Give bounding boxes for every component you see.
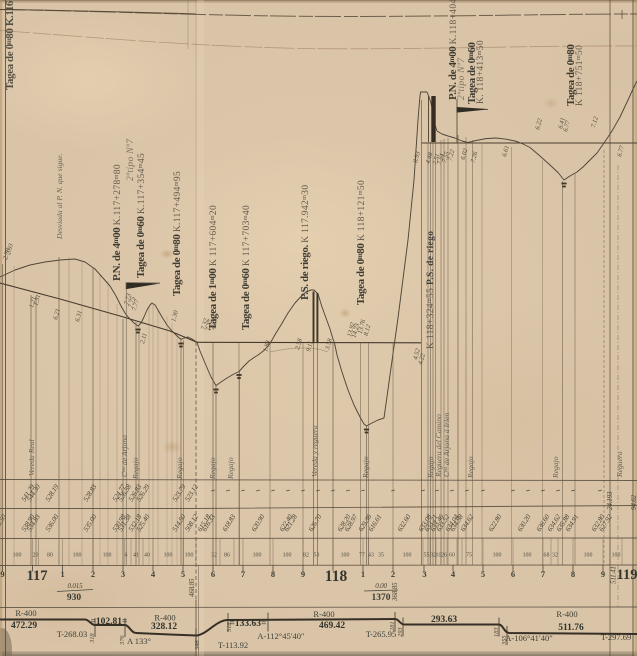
svg-text:100: 100 [584, 553, 593, 559]
svg-text:32: 32 [211, 553, 217, 559]
svg-text:T-297.69: T-297.69 [601, 632, 632, 642]
svg-text:100: 100 [283, 553, 292, 559]
svg-text:Regajo: Regajo [175, 457, 184, 480]
svg-text:2ºtipo Nº7: 2ºtipo Nº7 [126, 138, 136, 181]
svg-text:=102.81=: =102.81= [91, 617, 128, 627]
svg-text:Tagea de 0m80 K 118+121m50: Tagea de 0m80 K 118+121m50 [355, 180, 367, 305]
svg-text:K 118+324m55 P.S. de riego: K 118+324m55 P.S. de riego [426, 231, 436, 349]
svg-text:9: 9 [601, 569, 605, 579]
svg-text:100: 100 [493, 553, 502, 559]
svg-text:41: 41 [133, 553, 139, 559]
svg-text:80: 80 [47, 553, 53, 559]
svg-text:20: 20 [33, 553, 39, 559]
svg-text:24.193: 24.193 [606, 491, 614, 510]
svg-text:Regajo: Regajo [551, 456, 560, 479]
svg-text:100: 100 [403, 553, 412, 559]
svg-text:Reguera: Reguera [615, 451, 624, 478]
svg-text:Cno de Arjona á Irlen: Cno de Arjona á Irlen [442, 413, 451, 477]
svg-text:117: 117 [27, 568, 48, 584]
svg-text:R-400: R-400 [15, 608, 36, 618]
svg-text:R-400: R-400 [154, 613, 175, 623]
svg-text:R-400: R-400 [313, 609, 334, 619]
svg-text:5: 5 [481, 569, 485, 579]
svg-text:118: 118 [325, 568, 348, 585]
svg-text:77: 77 [359, 553, 365, 559]
svg-text:1: 1 [361, 569, 365, 579]
svg-text:9: 9 [301, 569, 305, 579]
svg-text:T-268.03: T-268.03 [57, 629, 88, 639]
svg-text:53: 53 [314, 553, 320, 559]
svg-text:293.63: 293.63 [431, 615, 457, 625]
svg-text:T-113.92: T-113.92 [218, 640, 248, 650]
svg-text:Tagea de 1m00 K 117+604m20: Tagea de 1m00 K 117+604m20 [207, 205, 219, 330]
svg-text:A-106°41′40″: A-106°41′40″ [505, 633, 553, 643]
svg-text:100: 100 [185, 553, 194, 559]
svg-text:R-400: R-400 [556, 609, 577, 619]
svg-text:Regajo: Regajo [226, 457, 235, 480]
svg-text:94.62: 94.62 [630, 494, 637, 510]
svg-text:3: 3 [422, 569, 426, 579]
svg-text:100: 100 [164, 553, 173, 559]
svg-text:Regajo: Regajo [208, 457, 217, 480]
svg-text:0.00: 0.00 [375, 582, 387, 590]
svg-text:K. 118+413m50: K. 118+413m50 [476, 40, 486, 104]
svg-text:86: 86 [224, 553, 230, 559]
svg-text:Tagea de 0m60 K 117+703m40: Tagea de 0m60 K 117+703m40 [240, 205, 252, 330]
svg-text:100: 100 [13, 553, 22, 559]
svg-text:Tagea de 0m80 K.116+854m45: Tagea de 0m80 K.116+854m45 [4, 0, 16, 90]
svg-text:Vereda y reguera: Vereda y reguera [310, 425, 319, 477]
svg-text:100: 100 [103, 553, 112, 559]
svg-text:68: 68 [544, 553, 550, 559]
svg-text:119: 119 [617, 567, 637, 583]
svg-text:Regajo: Regajo [466, 456, 475, 479]
svg-text:1370: 1370 [372, 593, 391, 603]
svg-text:1: 1 [60, 569, 64, 579]
svg-text:Tagea de 0m80 K.117+494m95: Tagea de 0m80 K.117+494m95 [171, 171, 183, 296]
svg-text:930: 930 [67, 593, 82, 603]
svg-text:T-265.95: T-265.95 [366, 629, 397, 639]
svg-text:40: 40 [144, 553, 150, 559]
svg-text:26: 26 [441, 553, 447, 559]
svg-text:A-112°45′40″: A-112°45′40″ [257, 631, 305, 641]
svg-text:100: 100 [73, 553, 82, 559]
svg-text:=133.63=: =133.63= [230, 619, 267, 629]
svg-text:8: 8 [271, 569, 275, 579]
svg-text:469.42: 469.42 [319, 621, 345, 631]
svg-text:6: 6 [125, 553, 128, 559]
svg-text:100: 100 [341, 553, 350, 559]
svg-text:Tagea de 0m60 K.117+354m45: Tagea de 0m60 K.117+354m45 [135, 153, 147, 278]
svg-text:K 118+751m50: K 118+751m50 [575, 45, 585, 106]
svg-text:60: 60 [449, 553, 455, 559]
svg-text:511.41: 511.41 [610, 566, 618, 584]
svg-text:318: 318 [89, 633, 96, 644]
svg-text:0.015: 0.015 [68, 582, 84, 590]
svg-text:75: 75 [466, 553, 472, 559]
svg-text:3: 3 [121, 569, 125, 579]
svg-text:32: 32 [552, 553, 558, 559]
svg-text:376: 376 [119, 635, 126, 646]
svg-text:8: 8 [571, 569, 575, 579]
svg-text:183: 183 [493, 627, 500, 637]
svg-text:Vereda Real: Vereda Real [27, 439, 36, 476]
svg-text:2: 2 [391, 569, 395, 579]
svg-text:6: 6 [511, 569, 515, 579]
svg-text:511.76: 511.76 [558, 623, 584, 633]
svg-text:P.N. de 4m00 K.117+278m80: P.N. de 4m00 K.117+278m80 [111, 164, 123, 281]
svg-text:43: 43 [368, 553, 374, 559]
svg-text:346: 346 [194, 640, 201, 651]
svg-text:Desviada al P. N. que sigue.: Desviada al P. N. que sigue. [55, 153, 64, 240]
svg-text:9: 9 [0, 569, 4, 579]
svg-text:368.85: 368.85 [391, 582, 399, 602]
svg-text:A 133°: A 133° [127, 636, 151, 646]
svg-text:2: 2 [91, 569, 95, 579]
svg-text:472.29: 472.29 [11, 621, 37, 631]
svg-text:Regajo: Regajo [361, 456, 370, 479]
svg-text:468.85: 468.85 [188, 578, 196, 597]
svg-text:328.12: 328.12 [151, 622, 177, 632]
svg-text:5: 5 [181, 569, 185, 579]
svg-text:P.S. de riego. K 117.942m30: P.S. de riego. K 117.942m30 [299, 185, 311, 300]
svg-text:35: 35 [378, 553, 384, 559]
svg-text:6: 6 [211, 569, 215, 579]
svg-text:100: 100 [612, 553, 621, 559]
svg-text:82: 82 [303, 553, 309, 559]
svg-text:100: 100 [253, 553, 262, 559]
svg-text:293: 293 [397, 627, 404, 637]
svg-text:Regajo: Regajo [131, 457, 140, 480]
svg-text:100: 100 [523, 553, 532, 559]
svg-text:55: 55 [424, 553, 430, 559]
